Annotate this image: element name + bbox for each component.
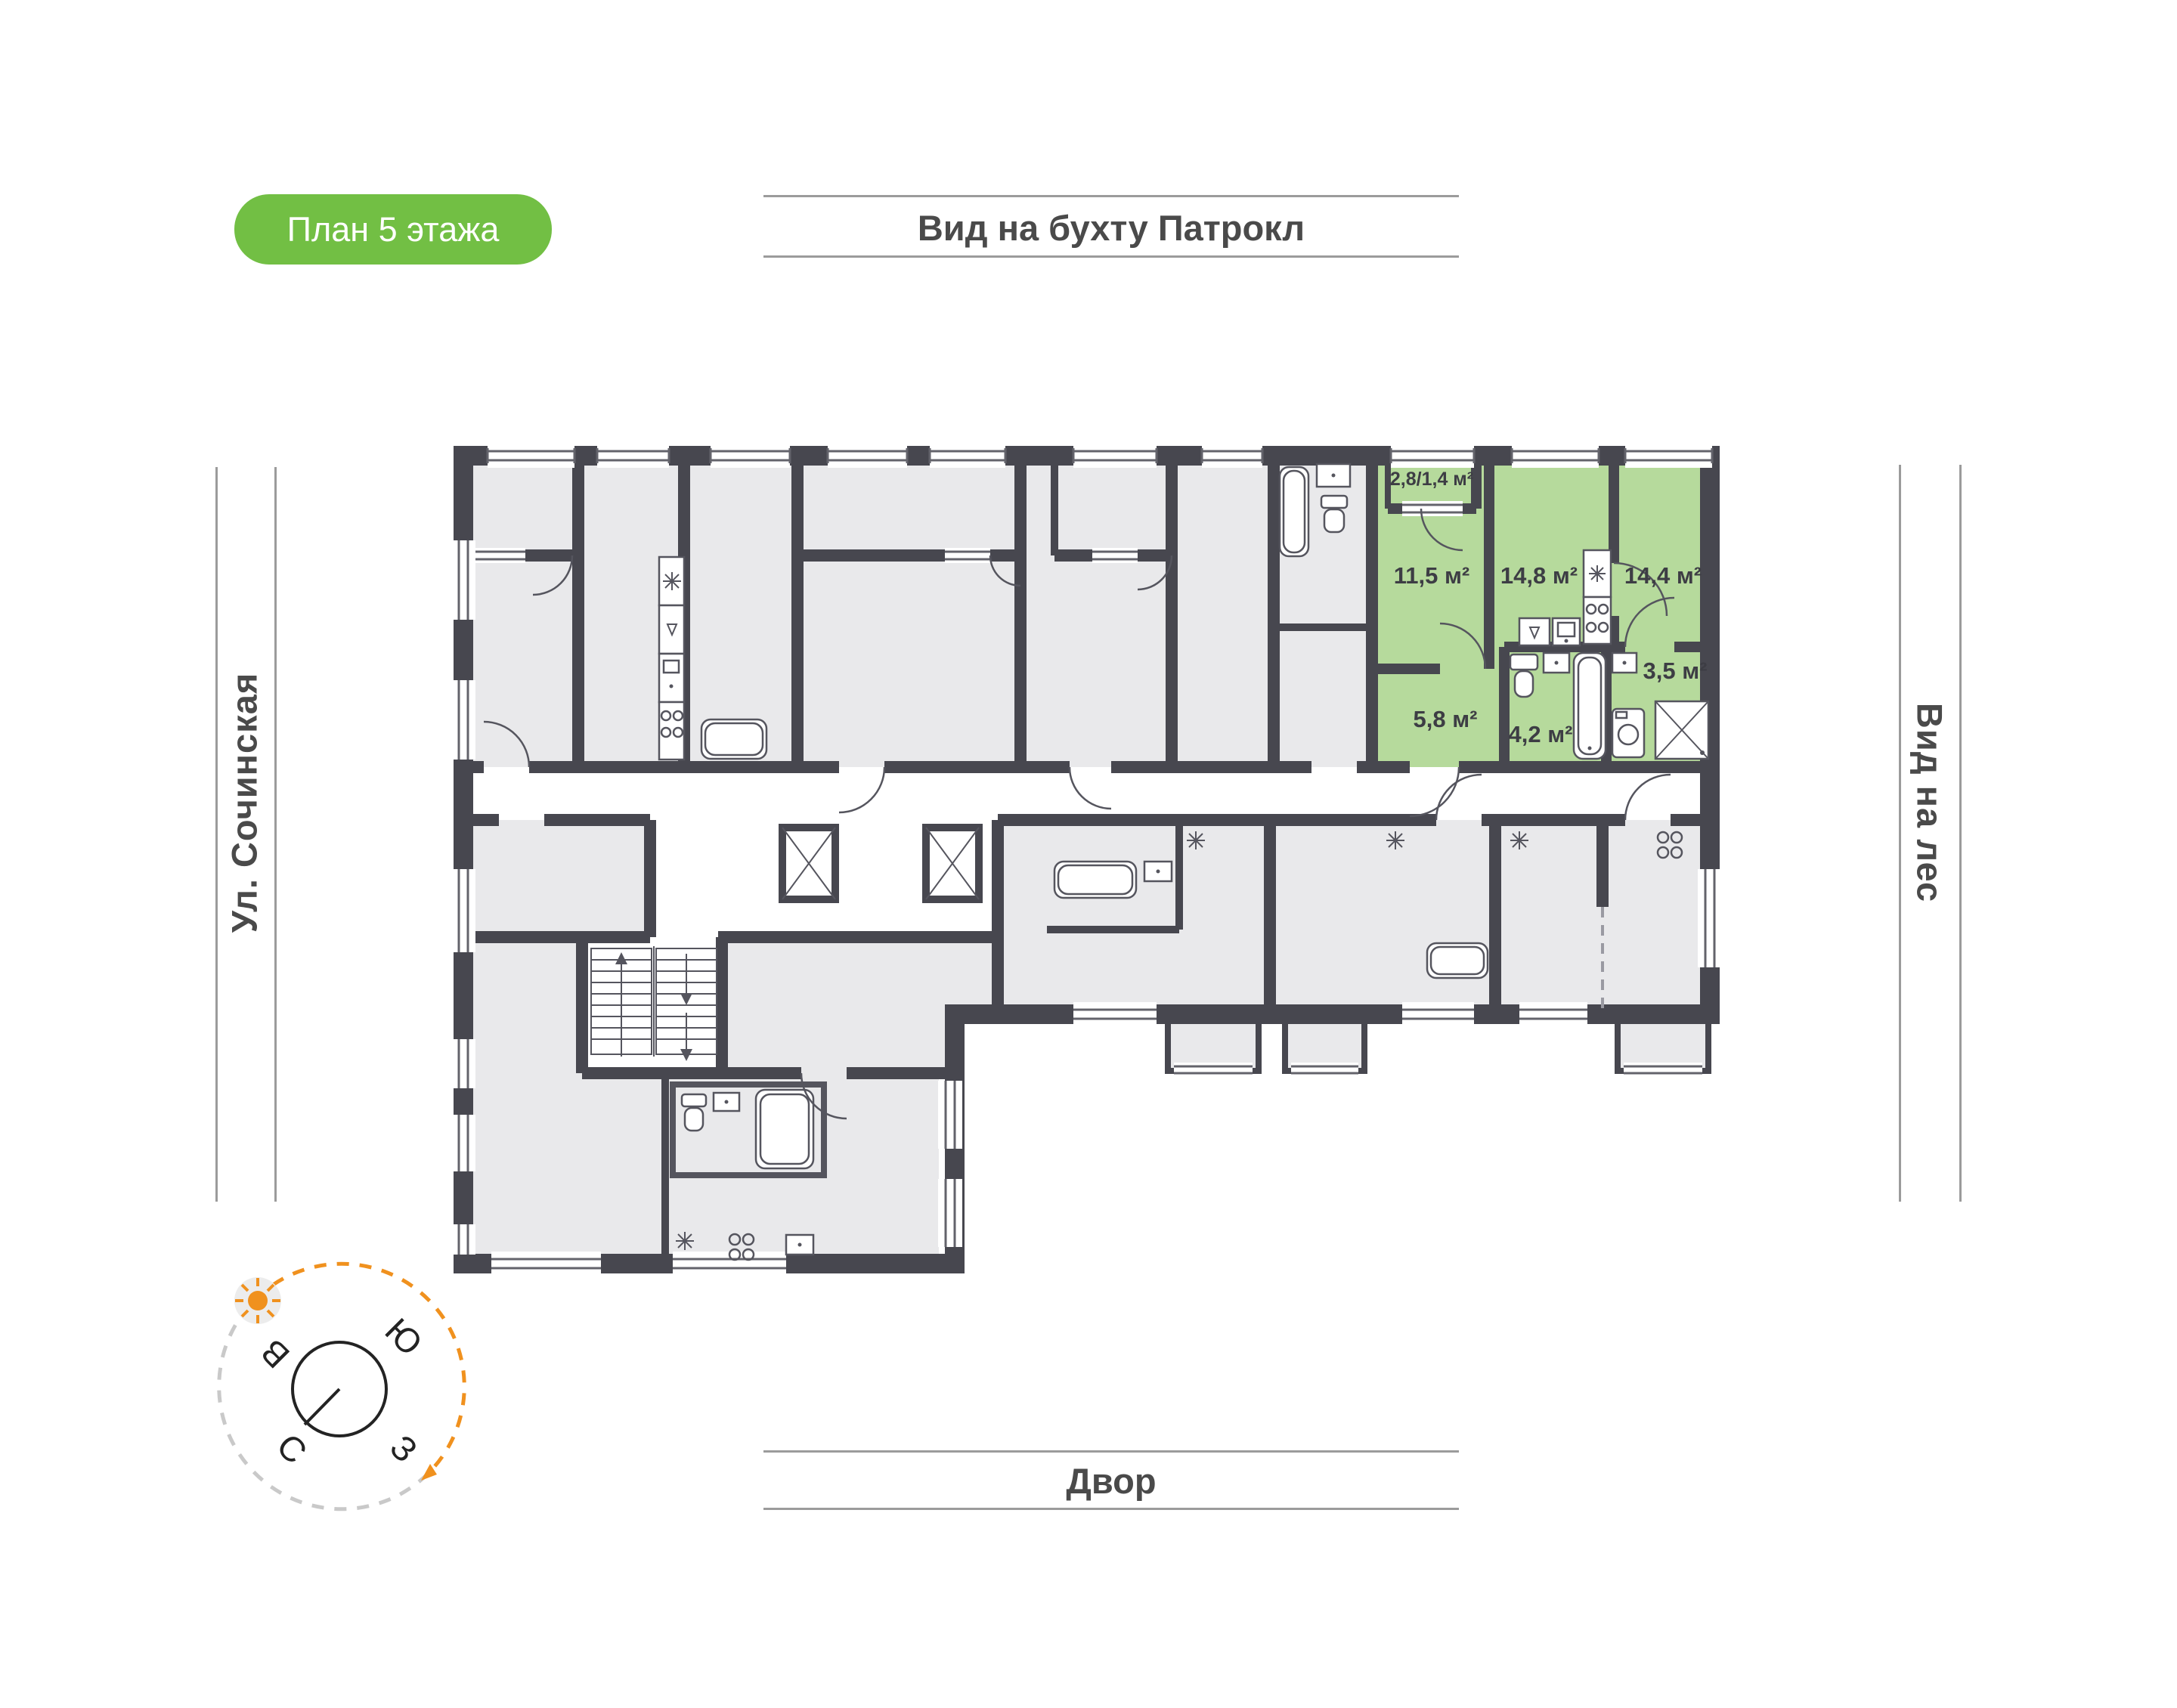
- room-area-bathroom: 4,2 м²: [1509, 721, 1573, 747]
- sun-path-arrow: [421, 1464, 437, 1481]
- floor-plan-page: План 5 этажа Вид на бухту Патрокл Ул. Со…: [0, 0, 2177, 1708]
- kettle-icon: [1519, 618, 1550, 645]
- room-area-hallway: 5,8 м²: [1414, 706, 1478, 732]
- compass-letter-С: С: [269, 1426, 314, 1471]
- room-area-kitchen-living: 14,8 м²: [1500, 562, 1578, 589]
- fridge-icon: [1386, 831, 1404, 849]
- compass: ВЮСЗ: [219, 1264, 465, 1509]
- stove-icon: [1584, 597, 1611, 644]
- toilet-icon: [1510, 654, 1538, 670]
- fridge-icon: [676, 1232, 694, 1250]
- bathtub-icon: [1054, 862, 1136, 898]
- sun-icon: [248, 1291, 268, 1310]
- corridor: [460, 767, 1714, 820]
- compass-letter-З: З: [382, 1427, 425, 1469]
- fridge-icon: [1187, 831, 1205, 849]
- room-area-loggia: 2,8/1,4 м²: [1390, 469, 1473, 490]
- room-area-shower-room: 3,5 м²: [1643, 658, 1708, 684]
- kettle-icon: [659, 605, 684, 654]
- washing-machine-icon: [1612, 709, 1644, 757]
- room-area-bedroom-1: 11,5 м²: [1394, 562, 1470, 589]
- fridge-icon: [1510, 831, 1528, 849]
- room-area-bedroom-2: 14,4 м²: [1624, 562, 1702, 589]
- toilet-icon: [682, 1094, 706, 1106]
- bathtub-icon: [756, 1090, 813, 1168]
- stove-icon: [659, 702, 684, 760]
- compass-letter-Ю: Ю: [377, 1310, 430, 1363]
- compass-letter-В: В: [252, 1332, 296, 1375]
- bathtub-icon: [701, 719, 766, 759]
- toilet-icon: [1321, 496, 1347, 508]
- floor-plan-svg: 2,8/1,4 м²11,5 м²14,8 м²14,4 м²5,8 м²4,2…: [0, 0, 2177, 1708]
